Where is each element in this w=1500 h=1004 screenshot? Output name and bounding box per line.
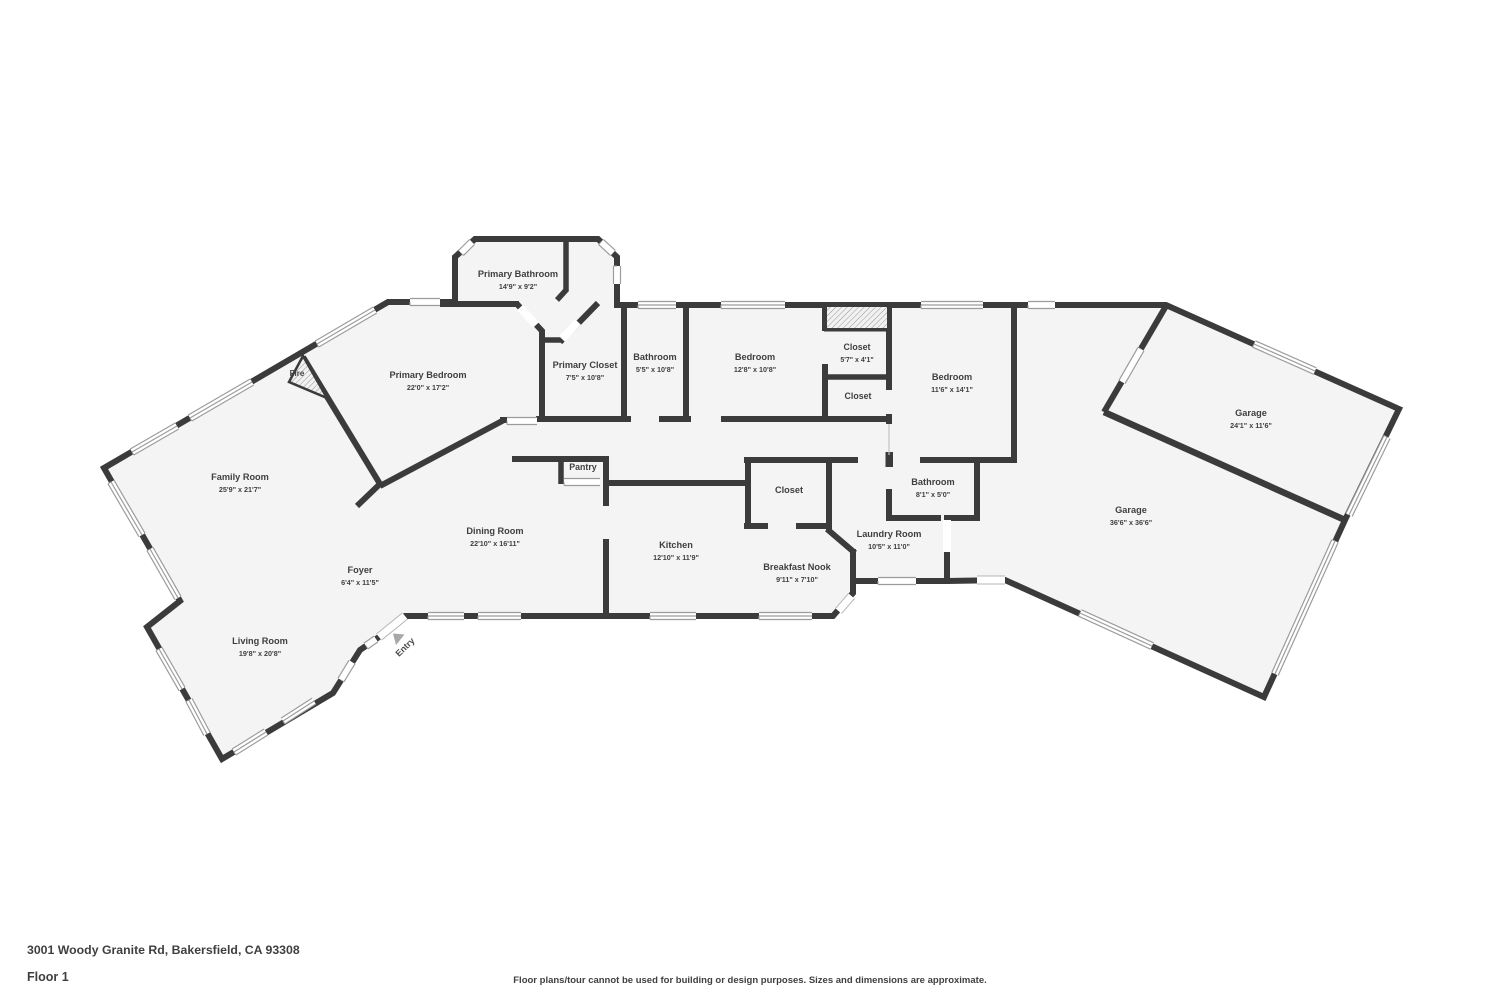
svg-text:3001 Woody Granite Rd, Bakersf: 3001 Woody Granite Rd, Bakersfield, CA 9… bbox=[27, 943, 300, 957]
svg-text:Bathroom: Bathroom bbox=[911, 477, 954, 487]
svg-text:Primary Bathroom: Primary Bathroom bbox=[478, 269, 558, 279]
svg-text:Bathroom: Bathroom bbox=[633, 352, 676, 362]
svg-text:Garage: Garage bbox=[1115, 505, 1147, 515]
svg-text:11'6" x 14'1": 11'6" x 14'1" bbox=[931, 385, 973, 394]
svg-text:Family Room: Family Room bbox=[211, 472, 269, 482]
svg-text:9'11" x 7'10": 9'11" x 7'10" bbox=[776, 575, 818, 584]
svg-text:Closet: Closet bbox=[775, 485, 803, 495]
svg-text:Primary Bedroom: Primary Bedroom bbox=[389, 370, 466, 380]
svg-text:24'1" x 11'6": 24'1" x 11'6" bbox=[1230, 421, 1272, 430]
svg-text:Kitchen: Kitchen bbox=[659, 540, 693, 550]
svg-text:Primary Closet: Primary Closet bbox=[553, 360, 618, 370]
svg-text:25'9" x 21'7": 25'9" x 21'7" bbox=[219, 485, 261, 494]
svg-text:Garage: Garage bbox=[1235, 408, 1267, 418]
svg-text:19'8" x 20'8": 19'8" x 20'8" bbox=[239, 649, 281, 658]
svg-text:Laundry Room: Laundry Room bbox=[857, 529, 922, 539]
svg-text:Bedroom: Bedroom bbox=[735, 352, 775, 362]
svg-text:22'10" x 16'11": 22'10" x 16'11" bbox=[470, 539, 520, 548]
svg-text:Bedroom: Bedroom bbox=[932, 372, 972, 382]
svg-text:7'5" x 10'8": 7'5" x 10'8" bbox=[566, 373, 604, 382]
svg-text:Pantry: Pantry bbox=[569, 462, 596, 472]
svg-text:Dining Room: Dining Room bbox=[466, 526, 523, 536]
svg-text:36'6" x 36'6": 36'6" x 36'6" bbox=[1110, 518, 1152, 527]
svg-text:Living Room: Living Room bbox=[232, 636, 288, 646]
svg-text:Fire: Fire bbox=[290, 369, 305, 378]
svg-text:6'4" x 11'5": 6'4" x 11'5" bbox=[341, 578, 379, 587]
svg-text:Foyer: Foyer bbox=[347, 565, 372, 575]
svg-text:Closet: Closet bbox=[845, 391, 872, 401]
svg-text:Breakfast Nook: Breakfast Nook bbox=[763, 562, 831, 572]
svg-text:Closet: Closet bbox=[844, 342, 871, 352]
svg-text:5'5" x 10'8": 5'5" x 10'8" bbox=[636, 365, 674, 374]
svg-text:22'0" x 17'2": 22'0" x 17'2" bbox=[407, 383, 449, 392]
svg-text:10'5" x 11'0": 10'5" x 11'0" bbox=[868, 542, 910, 551]
svg-text:5'7" x 4'1": 5'7" x 4'1" bbox=[840, 357, 873, 364]
svg-text:12'10" x 11'9": 12'10" x 11'9" bbox=[653, 553, 699, 562]
svg-text:12'8" x 10'8": 12'8" x 10'8" bbox=[734, 365, 776, 374]
svg-text:Floor 1: Floor 1 bbox=[27, 970, 69, 984]
svg-text:14'9" x 9'2": 14'9" x 9'2" bbox=[499, 282, 537, 291]
svg-text:Floor plans/tour cannot be use: Floor plans/tour cannot be used for buil… bbox=[513, 975, 987, 986]
svg-text:8'1" x 5'0": 8'1" x 5'0" bbox=[916, 490, 950, 499]
